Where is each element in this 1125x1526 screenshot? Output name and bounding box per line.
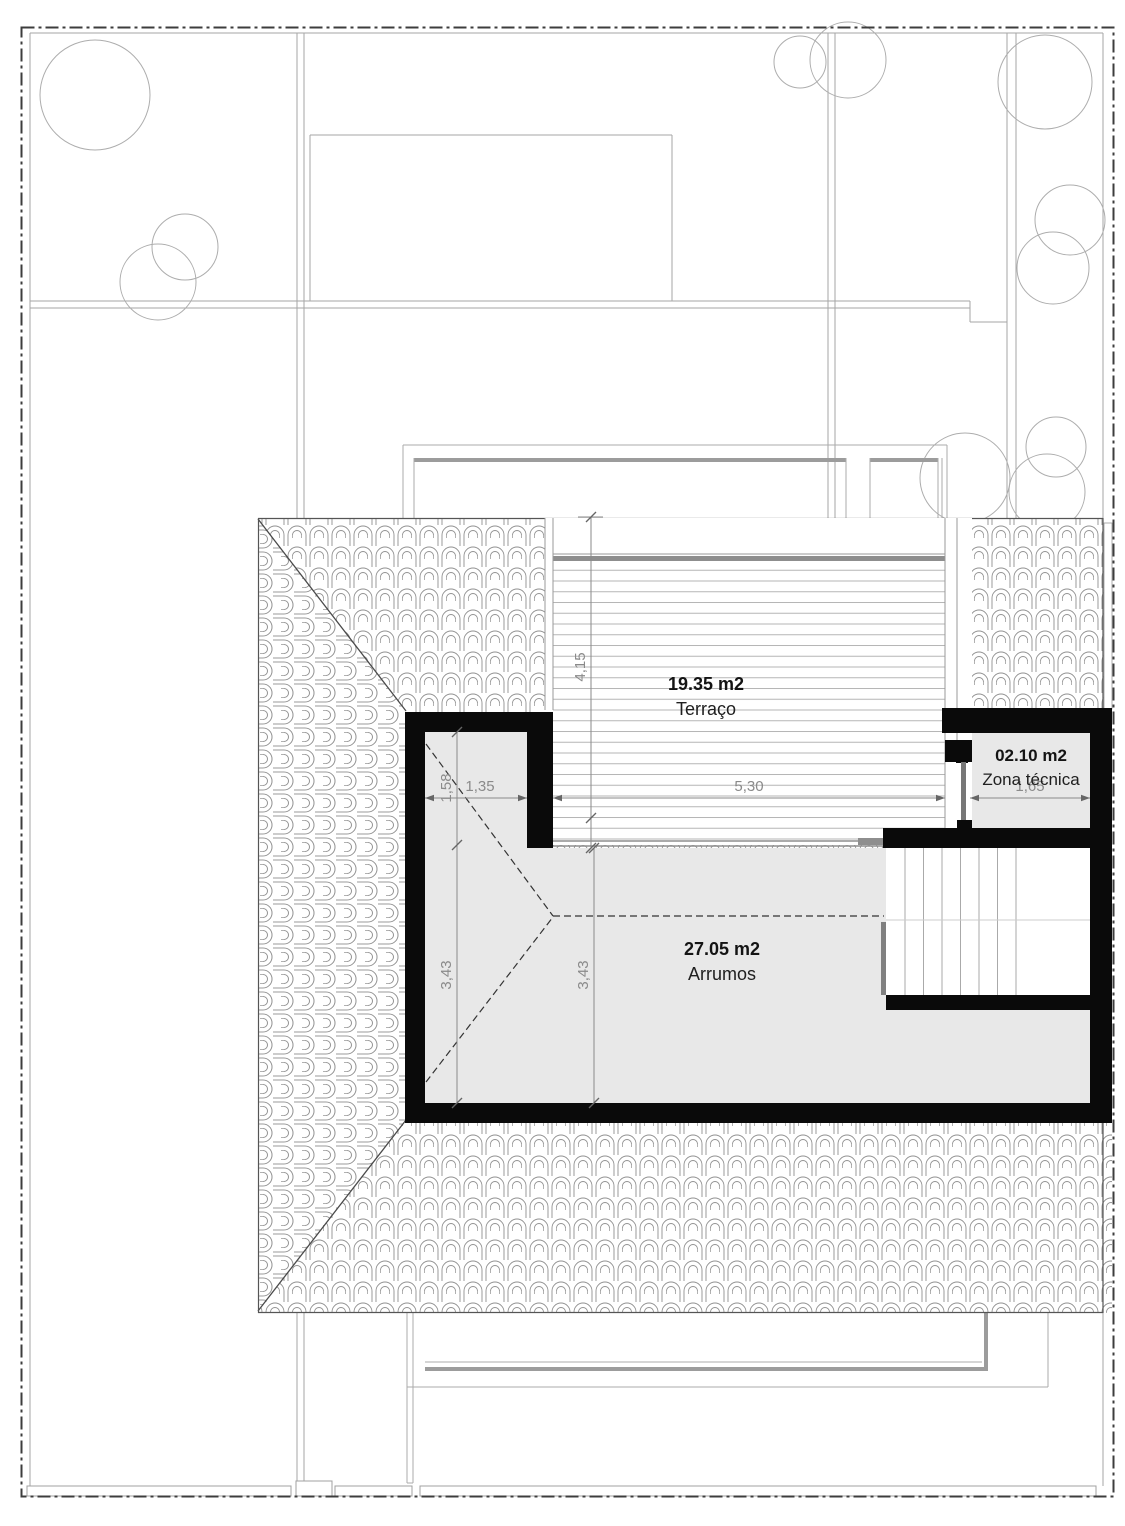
floor-plan-page: 1,35 5,30 1,65 1,58 3,43 3,43 4,15 19.35… (0, 0, 1125, 1526)
street-curb-strips (27, 1481, 1096, 1496)
technical-zone-name-label: Zona técnica (982, 770, 1080, 789)
floor-plan-drawing: 1,35 5,30 1,65 1,58 3,43 3,43 4,15 19.35… (0, 0, 1125, 1526)
terrace-decking (553, 562, 945, 845)
lower-floor-outline-top (403, 445, 947, 518)
terrace-name-label: Terraço (676, 699, 736, 719)
tree-symbols (40, 22, 1105, 530)
roof-gutter-strip (1104, 523, 1112, 709)
lower-floor-outline-bottom (407, 1313, 1048, 1483)
stair-threshold (858, 838, 883, 845)
technical-zone-area-label: 02.10 m2 (995, 746, 1067, 765)
dim-terrace-height: 4,15 (572, 652, 589, 681)
terrace (545, 518, 972, 846)
dim-storage-nook-height: 1,58 (438, 773, 455, 802)
staircase (858, 838, 1090, 995)
dim-storage-height-left: 3,43 (438, 960, 455, 989)
dim-storage-height-mid: 3,43 (575, 960, 592, 989)
dim-terrace-width: 5,30 (734, 778, 763, 795)
technical-zone-door (961, 762, 966, 820)
storage-area-label: 27.05 m2 (684, 939, 760, 959)
storage-floor (425, 848, 886, 1103)
stair-handrail (881, 922, 886, 995)
storage-name-label: Arrumos (688, 964, 756, 984)
terrace-area-label: 19.35 m2 (668, 674, 744, 694)
dim-storage-nook-width: 1,35 (465, 778, 494, 795)
terrace-parapet-top (553, 556, 945, 561)
